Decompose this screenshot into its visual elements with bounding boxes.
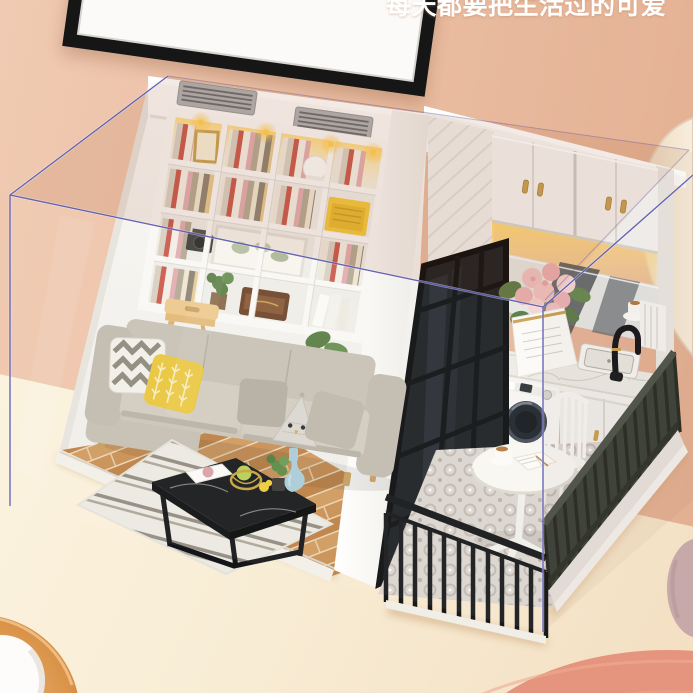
caption-text: 每天都要把生活过的可爱 <box>386 0 667 22</box>
pink-cup <box>667 538 693 638</box>
product-photo: 每天都要把生活过的可爱 <box>0 0 693 693</box>
left-plate <box>0 615 80 693</box>
dollhouse-illustration <box>0 0 693 693</box>
acrylic-cover <box>10 76 693 632</box>
right-plate <box>443 650 693 693</box>
